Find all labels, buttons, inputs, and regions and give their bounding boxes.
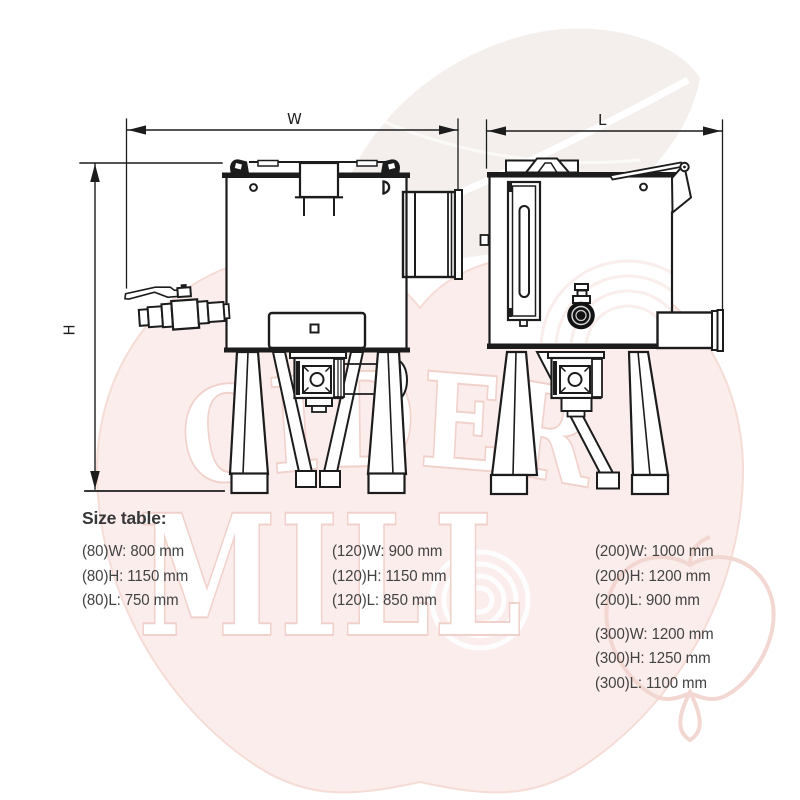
dimension-label-w: W	[287, 110, 302, 128]
front-left-foot	[232, 474, 268, 494]
size-row: (300)H: 1250 mm	[595, 647, 714, 672]
side-left-foot	[491, 475, 527, 494]
diagram-canvas: CIDER MILL	[0, 0, 800, 800]
side-lid-cover	[506, 159, 578, 173]
size-row: (300)L: 1100 mm	[595, 672, 714, 697]
size-row: (200)L: 900 mm	[595, 589, 714, 614]
size-row: (200)W: 1000 mm	[595, 540, 714, 565]
size-table-column-120: (120)W: 900 mm (120)H: 1150 mm (120)L: 8…	[332, 540, 446, 614]
size-table-column-200-300: (200)W: 1000 mm (200)H: 1200 mm (200)L: …	[595, 540, 714, 697]
side-left-tab	[481, 235, 489, 245]
size-row: (80)L: 750 mm	[82, 589, 188, 614]
dimension-label-h: H	[61, 324, 79, 335]
front-view-drawing	[124, 159, 462, 493]
size-row: (120)H: 1150 mm	[332, 565, 446, 590]
size-row: (200)H: 1200 mm	[595, 565, 714, 590]
front-outlet-cylinder	[403, 190, 462, 279]
side-view-drawing	[481, 159, 724, 495]
front-ball-valve	[124, 281, 230, 333]
front-discharge-panel	[269, 313, 365, 348]
size-row: (120)L: 850 mm	[332, 589, 446, 614]
front-right-foot	[369, 474, 405, 494]
size-row: (300)W: 1200 mm	[595, 623, 714, 648]
side-gearbox	[548, 352, 604, 417]
size-row: (80)W: 800 mm	[82, 540, 188, 565]
dimension-label-l: L	[598, 111, 606, 129]
side-right-foot	[632, 475, 668, 494]
size-table-heading: Size table:	[82, 508, 166, 529]
size-row: (80)H: 1150 mm	[82, 565, 188, 590]
size-table-column-80: (80)W: 800 mm (80)H: 1150 mm (80)L: 750 …	[82, 540, 188, 614]
size-row: (120)W: 900 mm	[332, 540, 446, 565]
side-outlet-chute	[658, 310, 724, 351]
side-sight-glass	[508, 182, 540, 326]
